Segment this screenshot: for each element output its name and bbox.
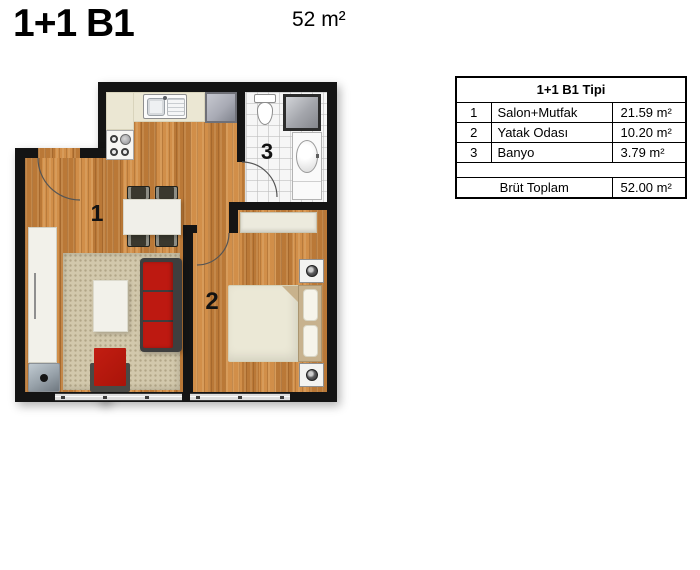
room-no: 1 [456, 102, 491, 122]
spec-table: 1+1 B1 Tipi 1 Salon+Mutfak 21.59 m² 2 Ya… [455, 76, 687, 199]
total-value: 52.00 m² [612, 177, 686, 198]
table-spacer-row [456, 162, 686, 177]
room-area: 10.20 m² [612, 122, 686, 142]
table-row: 1 Salon+Mutfak 21.59 m² [456, 102, 686, 122]
entrance-door-arc [38, 158, 80, 200]
table-row: 2 Yatak Odası 10.20 m² [456, 122, 686, 142]
page: 1+1 B1 52 m² [0, 0, 700, 570]
room-name: Banyo [491, 142, 612, 162]
room-no: 2 [456, 122, 491, 142]
table-total-row: Brüt Toplam 52.00 m² [456, 177, 686, 198]
bedroom-door-arc [197, 233, 229, 265]
room-name: Salon+Mutfak [491, 102, 612, 122]
total-label: Brüt Toplam [456, 177, 612, 198]
spacer-cell [456, 162, 686, 177]
plan-type-title: 1+1 B1 [13, 2, 134, 46]
floor-plan: 1 2 3 [15, 82, 337, 402]
gross-area-label: 52 m² [292, 8, 346, 32]
room-area: 21.59 m² [612, 102, 686, 122]
table-title: 1+1 B1 Tipi [456, 77, 686, 102]
bathroom-door-arc [242, 162, 277, 197]
door-arcs [15, 82, 337, 402]
table-row: 3 Banyo 3.79 m² [456, 142, 686, 162]
room-name: Yatak Odası [491, 122, 612, 142]
room-areas-table: 1+1 B1 Tipi 1 Salon+Mutfak 21.59 m² 2 Ya… [455, 76, 687, 199]
room-area: 3.79 m² [612, 142, 686, 162]
table-header-row: 1+1 B1 Tipi [456, 77, 686, 102]
room-no: 3 [456, 142, 491, 162]
